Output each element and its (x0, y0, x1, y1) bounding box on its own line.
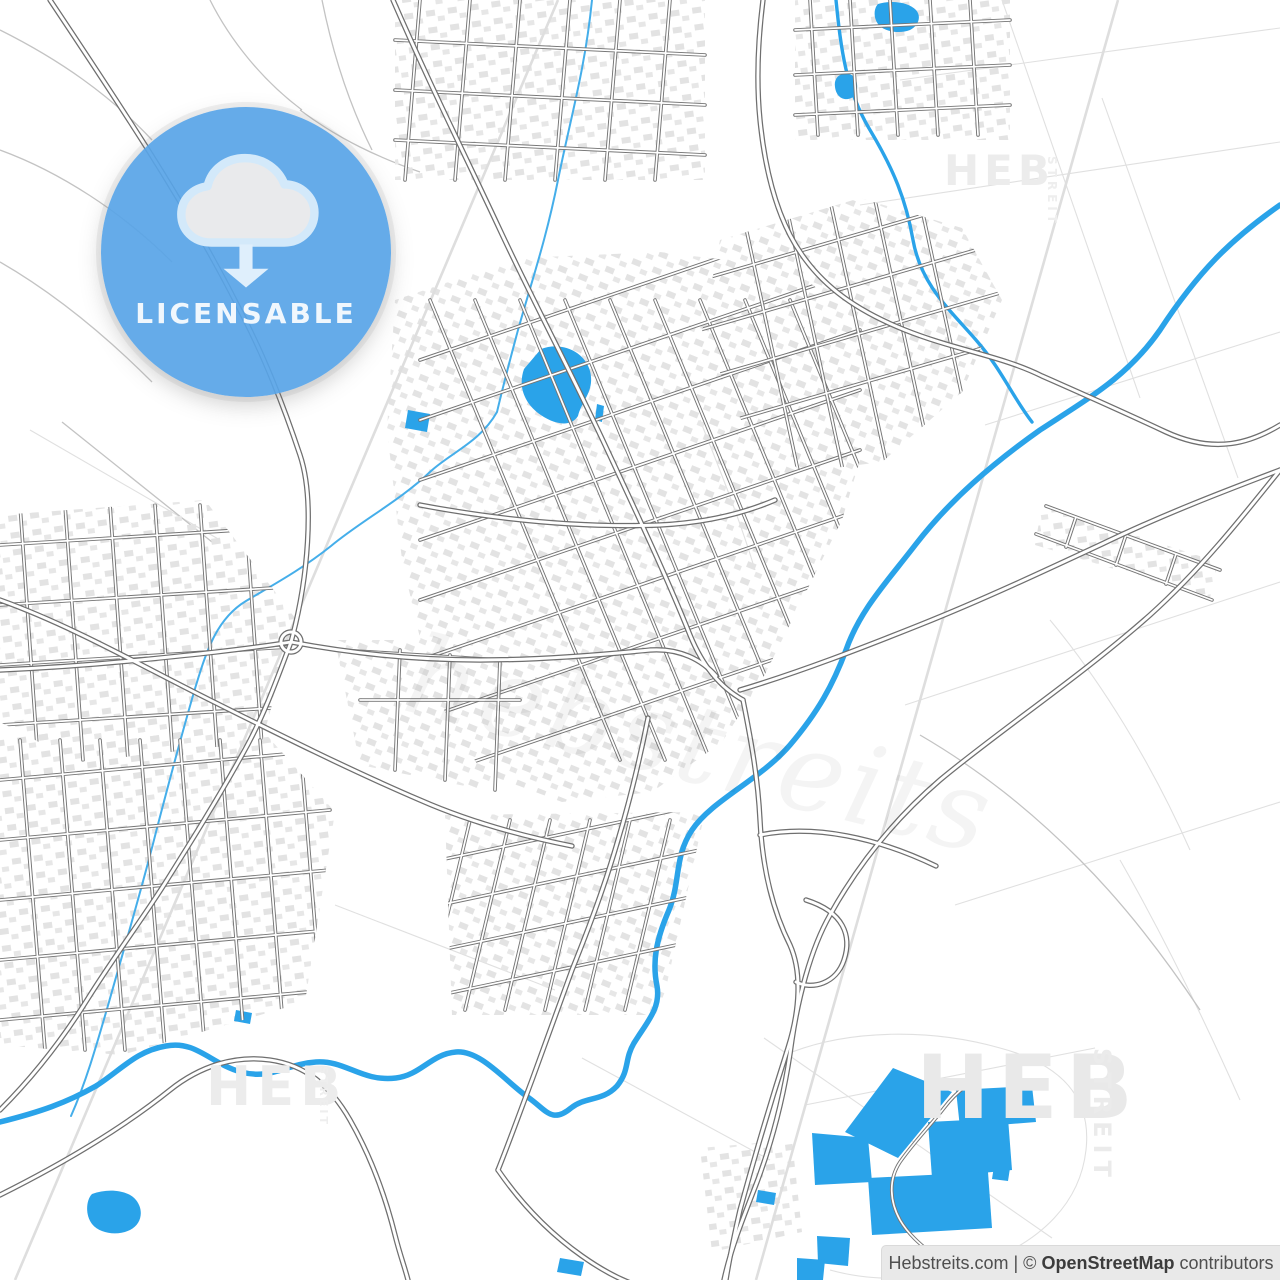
attribution-suffix: contributors (1179, 1253, 1273, 1274)
cloud-download-icon (171, 145, 321, 295)
attribution-provider: OpenStreetMap (1041, 1253, 1174, 1274)
licensable-badge: LICENSABLE (101, 107, 391, 397)
attribution-bar: Hebstreits.com | © OpenStreetMap contrib… (881, 1245, 1280, 1280)
attribution-source: Hebstreits.com (888, 1253, 1008, 1274)
map-preview-image: HEB STREIT HEB STREIT HEB STREIT hebstre… (0, 0, 1280, 1280)
badge-label: LICENSABLE (135, 297, 357, 330)
attribution-divider: | © (1014, 1253, 1037, 1274)
